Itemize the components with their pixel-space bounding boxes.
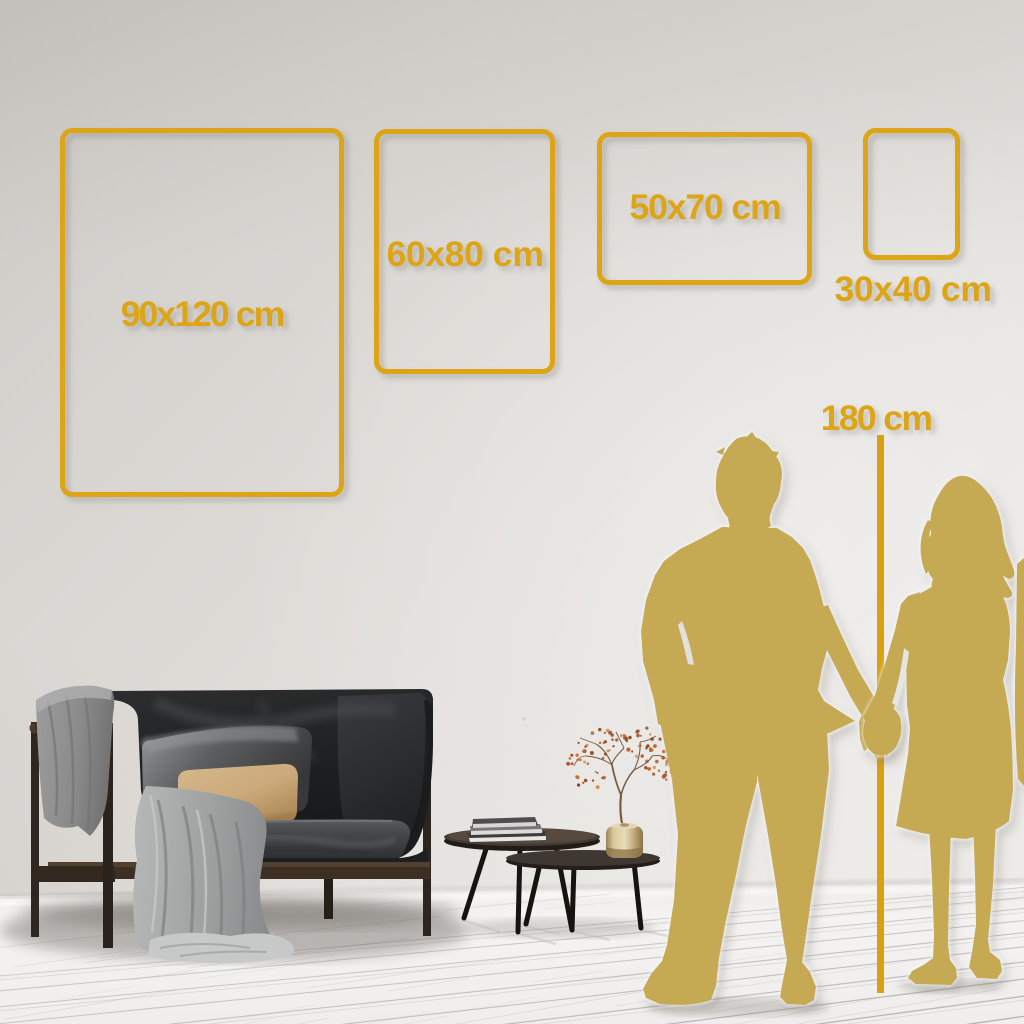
svg-text:90x120 cm: 90x120 cm (121, 294, 284, 334)
svg-text:30x40 cm: 30x40 cm (834, 269, 991, 309)
svg-text:50x70 cm: 50x70 cm (629, 187, 780, 227)
svg-text:60x80 cm: 60x80 cm (386, 234, 543, 274)
svg-text:180 cm: 180 cm (821, 398, 932, 438)
